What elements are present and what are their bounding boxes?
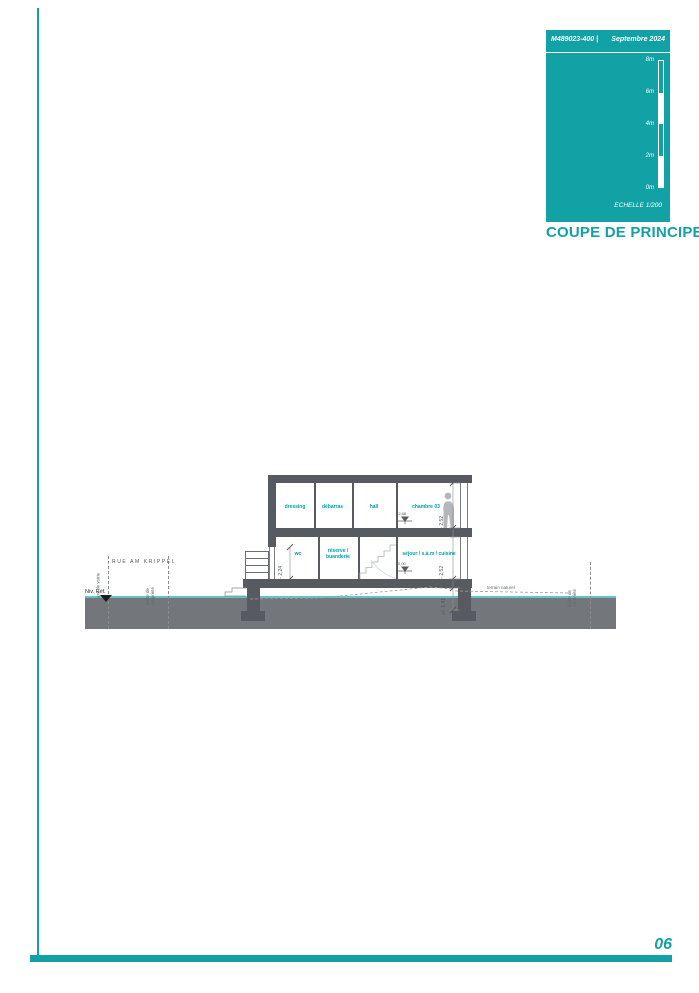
roof-slab: [268, 475, 472, 483]
issue-date: Septembre 2024: [611, 36, 665, 43]
footing-right: [452, 611, 476, 621]
level-marker-icon: [398, 567, 412, 574]
property-limit-line-left: [168, 556, 169, 629]
dimension-line-entrance: [287, 544, 293, 582]
terrain-naturel-label: terrain naturel: [487, 585, 515, 590]
street-name-label: RUE AM KRIPPEL: [112, 559, 176, 565]
scale-segment: [659, 156, 663, 188]
level-value-upper: +2,88: [396, 511, 406, 516]
room-label-reserve-line2: buanderie: [318, 554, 358, 560]
partition-ground-2: [358, 537, 360, 579]
graphic-scale-bar: [658, 60, 664, 188]
terrain-surface-line: [85, 596, 616, 598]
title-block-header: M489023-400 | Septembre 2024: [551, 36, 665, 43]
page-number: 06: [654, 936, 672, 954]
entrance-door-frame: [269, 547, 275, 579]
room-label-debarras: débarras: [313, 504, 352, 510]
footing-left: [241, 611, 265, 621]
property-limit-right-line2: propriété: [573, 589, 578, 607]
room-label-wc: wc: [278, 551, 318, 557]
property-limit-left-line2: propriété: [151, 587, 156, 605]
staircase-steps: [360, 545, 396, 579]
header-separator: [546, 52, 670, 53]
scale-label: ECHELLE 1/200: [614, 202, 662, 209]
scale-tick-2m: 2m: [634, 153, 654, 159]
pier-right: [458, 588, 471, 611]
level-marker-icon: [398, 517, 412, 524]
glazing-upper: [460, 483, 468, 528]
road-axis-label: axe de voirie: [96, 573, 101, 599]
dim-upper-floor: +/- 2,52: [439, 516, 445, 533]
scale-segment: [659, 93, 663, 125]
scale-tick-4m: 4m: [634, 121, 654, 127]
drawing-sheet: 06 M489023-400 | Septembre 2024 8m 6m 4m…: [0, 0, 699, 993]
partition-ground-3: [396, 537, 398, 579]
footer-rule: [30, 955, 672, 962]
dim-ground-floor: +/- 2,52: [439, 566, 445, 583]
room-label-reserve: réserve / buanderie: [318, 548, 358, 561]
entrance-railing: [245, 551, 269, 579]
staircase-curve: [371, 560, 396, 579]
scale-tick-8m: 8m: [634, 57, 654, 63]
scale-segment: [659, 61, 663, 93]
title-block: M489023-400 | Septembre 2024 8m 6m 4m 2m…: [546, 30, 670, 222]
scale-segment: [659, 124, 663, 156]
scale-tick-6m: 6m: [634, 89, 654, 95]
entrance-steps: [225, 588, 246, 596]
glazing-ground: [460, 537, 468, 579]
property-limit-line-right: [590, 562, 591, 629]
left-margin-rule: [37, 8, 39, 955]
room-label-sejour: séjour / s.à.m / cuisine: [398, 551, 460, 557]
dim-entrance: +/- 2,24: [278, 566, 284, 583]
ground-mass: [85, 598, 616, 629]
property-limit-label-left: limite de propriété: [145, 587, 156, 605]
level-value-ground: 0,00: [398, 561, 406, 566]
wall-left-upper: [268, 483, 276, 528]
room-label-chambre03: chambre 03: [398, 504, 454, 510]
human-figure-head: [445, 493, 452, 500]
room-label-hall: hall: [352, 504, 396, 510]
terrain-dashed-right: [455, 591, 570, 593]
pier-left: [247, 588, 260, 611]
room-label-dressing: dressing: [276, 504, 314, 510]
road-axis-line: [108, 556, 109, 629]
dim-base-height: +/- 1,41: [441, 598, 447, 615]
sheet-title: COUPE DE PRINCIPE: [546, 224, 699, 241]
wall-left-ground: [268, 537, 276, 547]
property-limit-label-right: limite de propriété: [567, 589, 578, 607]
scale-tick-0m: 0m: [634, 185, 654, 191]
project-reference: M489023-400 |: [551, 36, 598, 43]
